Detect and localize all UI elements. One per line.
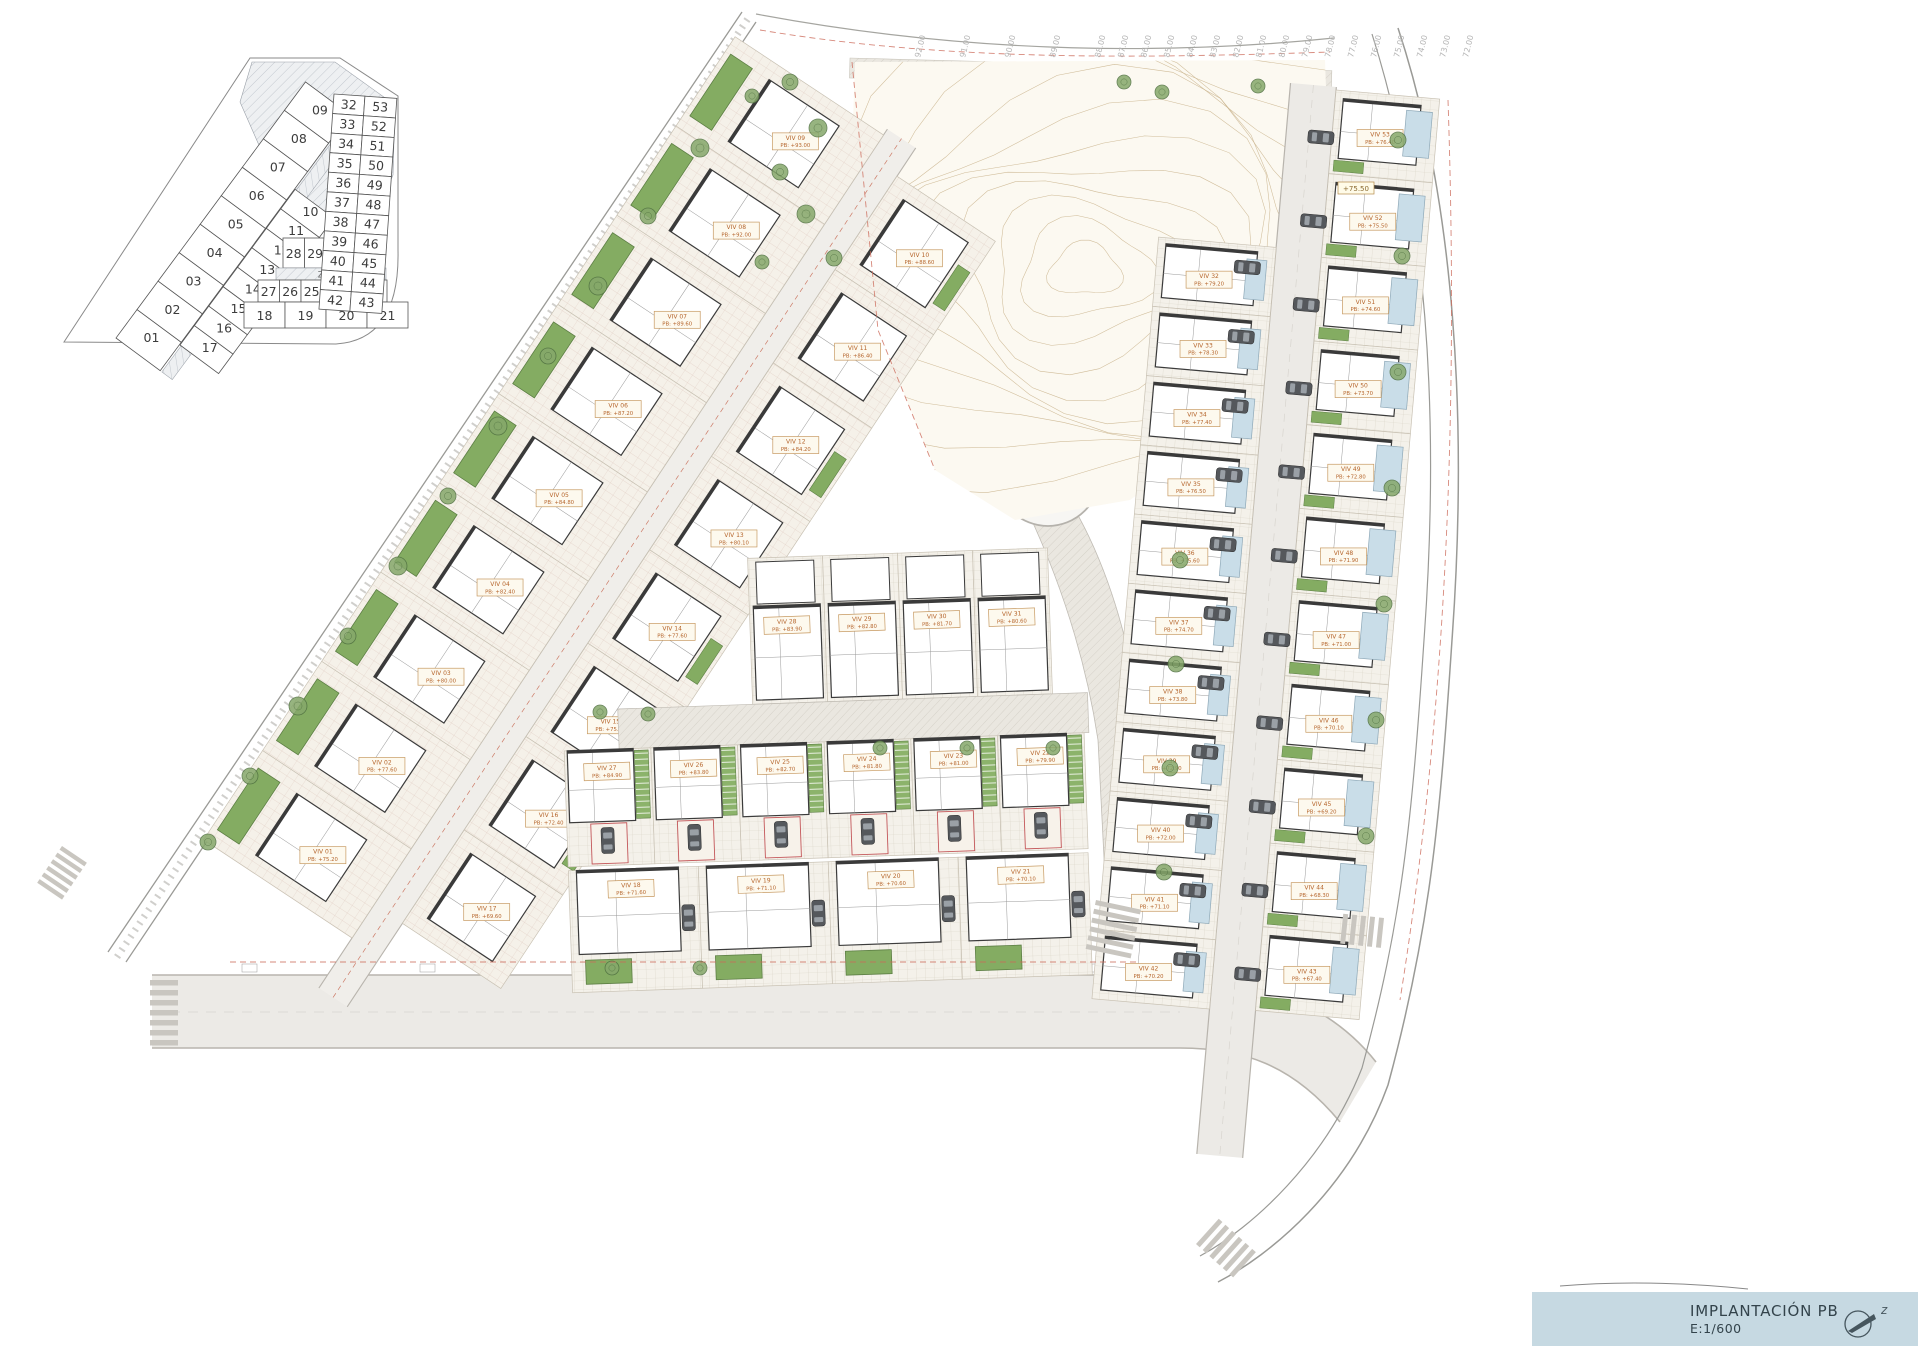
contour-elevation-label: 86.00 <box>1139 34 1153 58</box>
svg-text:PB: +83.80: PB: +83.80 <box>679 770 710 777</box>
svg-text:PB: +70.60: PB: +70.60 <box>876 881 907 888</box>
svg-text:52: 52 <box>370 118 387 134</box>
contour-elevation-label: 91.00 <box>958 34 972 58</box>
svg-text:PB: +84.90: PB: +84.90 <box>592 773 623 780</box>
villa-label: VIV 14PB: +77.60 <box>649 623 695 640</box>
contour-elevation-label: 85.00 <box>1162 34 1176 58</box>
car-icon <box>812 900 826 926</box>
tree-icon <box>1162 760 1178 776</box>
tree-icon <box>289 697 307 715</box>
tree-icon <box>1168 656 1184 672</box>
villa-label: VIV 34PB: +77.40 <box>1174 410 1220 427</box>
svg-text:PB: +86.40: PB: +86.40 <box>843 353 874 359</box>
svg-text:PB: +75.20: PB: +75.20 <box>308 857 339 863</box>
tree-icon <box>691 139 709 157</box>
svg-text:VIV 21: VIV 21 <box>1011 868 1031 876</box>
car-icon <box>1256 716 1283 731</box>
villa-label: VIV 18PB: +71.60 <box>608 879 655 898</box>
villa-plot: VIV 25PB: +82.70 <box>737 742 828 861</box>
svg-text:PB: +79.20: PB: +79.20 <box>1194 281 1225 287</box>
tree-icon <box>755 255 769 269</box>
villa-plot: VIV 28PB: +83.90 <box>748 556 828 705</box>
tree-icon <box>782 74 798 90</box>
terrace-pool <box>1366 529 1396 577</box>
spot-elevation: +75.50 <box>1338 182 1374 194</box>
svg-text:VIV 40: VIV 40 <box>1151 827 1171 834</box>
villa-plot: VIV 24PB: +81.80 <box>824 739 915 858</box>
svg-text:VIV 28: VIV 28 <box>777 618 797 626</box>
svg-text:PB: +79.90: PB: +79.90 <box>1025 758 1056 765</box>
svg-text:53: 53 <box>372 99 389 115</box>
car-icon <box>1179 883 1206 898</box>
svg-text:VIV 25: VIV 25 <box>770 759 790 767</box>
tree-icon <box>960 741 974 755</box>
villa-label: VIV 45PB: +69.20 <box>1299 799 1345 816</box>
villa-building <box>740 742 808 816</box>
villa-label: VIV 08PB: +92.00 <box>713 222 759 239</box>
dimension-box <box>420 964 435 972</box>
tree-icon <box>641 707 655 721</box>
car-icon <box>947 815 961 841</box>
svg-text:45: 45 <box>361 255 378 271</box>
villa-label: VIV 07PB: +89.60 <box>654 311 700 328</box>
svg-text:VIV 45: VIV 45 <box>1312 801 1332 808</box>
villa-label: VIV 38PB: +73.80 <box>1150 687 1196 704</box>
pergola <box>721 747 737 815</box>
villa-label: VIV 40PB: +72.00 <box>1138 825 1184 842</box>
svg-text:01: 01 <box>143 330 159 345</box>
pool <box>715 954 762 980</box>
dimension-box <box>242 964 257 972</box>
contour-elevation-label: 74.00 <box>1415 34 1429 58</box>
contour-elevation-label: 84.00 <box>1185 34 1199 58</box>
tree-icon <box>200 834 216 850</box>
villa-plot: VIV 26PB: +83.80 <box>651 745 742 864</box>
tree-icon <box>693 961 707 975</box>
svg-text:16: 16 <box>216 320 232 335</box>
svg-text:VIV 18: VIV 18 <box>621 882 641 890</box>
tree-icon <box>745 89 759 103</box>
car-icon <box>861 818 875 844</box>
svg-text:VIV 19: VIV 19 <box>751 877 771 885</box>
svg-text:PB: +80.00: PB: +80.00 <box>426 679 457 685</box>
top-boundary <box>756 14 1334 49</box>
villa-plot: VIV 18PB: +71.60 <box>568 866 702 992</box>
tree-icon <box>640 208 656 224</box>
car-icon <box>1071 891 1085 917</box>
svg-text:PB: +82.40: PB: +82.40 <box>485 589 516 595</box>
svg-text:PB: +69.60: PB: +69.60 <box>472 914 503 920</box>
svg-text:PB: +74.60: PB: +74.60 <box>1350 307 1381 313</box>
svg-text:35: 35 <box>336 155 353 171</box>
villa-label: VIV 05PB: +84.80 <box>536 490 582 507</box>
svg-text:VIV 14: VIV 14 <box>662 625 682 632</box>
svg-text:33: 33 <box>339 116 356 132</box>
svg-text:PB: +71.90: PB: +71.90 <box>1329 558 1360 564</box>
villa-label: VIV 24PB: +81.80 <box>844 753 891 772</box>
svg-text:47: 47 <box>364 216 381 232</box>
villa-label: VIV 29PB: +82.80 <box>839 613 886 632</box>
site-plan-canvas: VIV 01PB: +75.20VIV 02PB: +77.60VIV 03PB… <box>0 0 1920 1357</box>
svg-text:PB: +83.90: PB: +83.90 <box>772 626 803 633</box>
svg-text:PB: +73.80: PB: +73.80 <box>1158 697 1189 703</box>
svg-text:PB: +87.20: PB: +87.20 <box>603 411 634 417</box>
svg-text:VIV 08: VIV 08 <box>727 224 747 231</box>
villa-plot: VIV 19PB: +71.10 <box>698 862 832 988</box>
pool <box>975 945 1022 971</box>
villa-label: VIV 12PB: +84.20 <box>773 437 819 454</box>
crosswalk <box>37 846 87 900</box>
villa-label: VIV 32PB: +79.20 <box>1186 271 1232 288</box>
svg-text:04: 04 <box>207 245 223 260</box>
svg-text:VIV 47: VIV 47 <box>1326 634 1346 641</box>
villa-plot: VIV 35PB: +76.50 <box>1134 445 1258 525</box>
svg-text:VIV 06: VIV 06 <box>608 403 628 410</box>
terrace-pool <box>1344 780 1374 828</box>
svg-text:VIV 46: VIV 46 <box>1319 717 1339 724</box>
villa-label: VIV 35PB: +76.50 <box>1168 479 1214 496</box>
car-icon <box>1173 952 1200 967</box>
svg-text:VIV 09: VIV 09 <box>786 135 806 142</box>
svg-text:03: 03 <box>186 273 202 288</box>
svg-text:PB: +70.10: PB: +70.10 <box>1314 726 1345 732</box>
svg-text:VIV 07: VIV 07 <box>667 313 687 320</box>
villa-label: VIV 19PB: +71.10 <box>738 875 785 894</box>
villa-plot: VIV 30PB: +81.70 <box>897 551 977 700</box>
svg-text:VIV 20: VIV 20 <box>881 873 901 881</box>
villa-plot: VIV 23PB: +81.00 <box>911 736 1002 855</box>
svg-text:PB: +73.70: PB: +73.70 <box>1343 391 1374 397</box>
villa-label: VIV 16PB: +72.40 <box>526 810 572 827</box>
terrace-pool <box>1403 110 1433 158</box>
svg-text:PB: +68.30: PB: +68.30 <box>1299 893 1330 899</box>
svg-text:VIV 24: VIV 24 <box>857 756 877 764</box>
svg-text:PB: +80.10: PB: +80.10 <box>719 540 750 546</box>
svg-text:PB: +81.80: PB: +81.80 <box>852 764 883 771</box>
villa-label: VIV 44PB: +68.30 <box>1291 883 1337 900</box>
villa-label: VIV 41PB: +71.10 <box>1132 894 1178 911</box>
svg-text:PB: +82.80: PB: +82.80 <box>847 624 878 631</box>
tree-icon <box>809 119 827 137</box>
svg-text:VIV 51: VIV 51 <box>1356 299 1376 306</box>
villa-label: VIV 26PB: +83.80 <box>670 759 717 778</box>
car-icon <box>1228 329 1255 344</box>
car-icon <box>1034 812 1048 838</box>
villa-plot: VIV 31PB: +80.60 <box>972 548 1052 697</box>
svg-text:PB: +77.40: PB: +77.40 <box>1182 420 1213 426</box>
svg-text:PB: +77.60: PB: +77.60 <box>657 634 688 640</box>
terrace-pool <box>1337 863 1367 911</box>
svg-text:02: 02 <box>165 302 181 317</box>
svg-text:PB: +72.40: PB: +72.40 <box>534 820 565 826</box>
svg-text:VIV 02: VIV 02 <box>372 759 392 766</box>
svg-text:29: 29 <box>307 246 323 261</box>
contour-elevation-label: 81.00 <box>1254 34 1268 58</box>
svg-text:VIV 41: VIV 41 <box>1145 896 1165 903</box>
car-icon <box>688 824 702 850</box>
villa-label: VIV 13PB: +80.10 <box>711 530 757 547</box>
svg-text:38: 38 <box>332 214 349 230</box>
svg-text:PB: +72.80: PB: +72.80 <box>1336 475 1367 481</box>
tree-icon <box>873 741 887 755</box>
svg-text:PB: +84.80: PB: +84.80 <box>544 500 575 506</box>
svg-text:z: z <box>1880 1303 1888 1317</box>
tree-icon <box>1384 480 1400 496</box>
pergola <box>894 741 910 809</box>
tree-icon <box>1390 364 1406 380</box>
villa-label: VIV 20PB: +70.60 <box>868 870 915 889</box>
villa-plot: VIV 20PB: +70.60 <box>828 857 962 983</box>
car-icon <box>1278 464 1305 479</box>
tree-icon <box>1251 79 1265 93</box>
svg-text:PB: +89.60: PB: +89.60 <box>662 322 693 328</box>
svg-text:PB: +80.60: PB: +80.60 <box>997 618 1028 625</box>
svg-text:VIV 32: VIV 32 <box>1199 273 1219 280</box>
terrace-pool <box>1329 947 1359 995</box>
svg-text:40: 40 <box>329 253 346 269</box>
car-icon <box>1216 468 1243 483</box>
svg-text:VIV 33: VIV 33 <box>1193 342 1213 349</box>
tree-icon <box>826 250 842 266</box>
tree-icon <box>589 277 607 295</box>
key-plan: ZC01010203040506070809171615141312111028… <box>64 58 408 380</box>
svg-text:VIV 23: VIV 23 <box>944 752 964 760</box>
svg-text:+75.50: +75.50 <box>1343 185 1369 193</box>
svg-text:PB: +81.00: PB: +81.00 <box>939 761 970 768</box>
svg-text:VIV 10: VIV 10 <box>910 252 930 259</box>
svg-text:PB: +78.30: PB: +78.30 <box>1188 351 1219 357</box>
svg-text:VIV 44: VIV 44 <box>1304 885 1324 892</box>
svg-text:PB: +74.70: PB: +74.70 <box>1164 628 1195 634</box>
contour-elevation-label: 87.00 <box>1116 34 1130 58</box>
villa-label: VIV 31PB: +80.60 <box>989 608 1036 627</box>
svg-text:25: 25 <box>304 284 320 299</box>
villa-plot: VIV 32PB: +79.20 <box>1153 237 1277 317</box>
svg-text:43: 43 <box>358 294 375 310</box>
villa-plot: VIV 33PB: +78.30 <box>1146 306 1270 386</box>
villa-label: VIV 33PB: +78.30 <box>1180 340 1226 357</box>
svg-text:50: 50 <box>368 157 385 173</box>
pergola <box>807 744 823 812</box>
car-icon <box>941 895 955 921</box>
car-icon <box>1293 297 1320 312</box>
svg-text:07: 07 <box>270 159 286 174</box>
car-icon <box>774 821 788 847</box>
contour-elevation-label: 78.00 <box>1323 34 1337 58</box>
svg-text:VIV 05: VIV 05 <box>549 492 569 499</box>
svg-text:VIV 15: VIV 15 <box>601 719 621 726</box>
tree-icon <box>1172 552 1188 568</box>
car-icon <box>1234 967 1261 982</box>
terrace-pool <box>1388 278 1418 326</box>
car-icon <box>1234 260 1261 275</box>
svg-text:28: 28 <box>286 246 302 261</box>
svg-text:VIV 13: VIV 13 <box>724 532 744 539</box>
svg-text:PB: +69.20: PB: +69.20 <box>1307 809 1338 815</box>
villa-plot: VIV 36PB: +75.60 <box>1128 514 1252 594</box>
svg-text:VIV 49: VIV 49 <box>1341 466 1361 473</box>
car-icon <box>1263 632 1290 647</box>
north-arrow-icon: z <box>1834 1300 1896 1340</box>
villa-building <box>654 745 722 819</box>
car-icon <box>601 827 615 853</box>
car-icon <box>1191 744 1218 759</box>
svg-text:VIV 38: VIV 38 <box>1163 689 1183 696</box>
villa-building <box>567 749 635 823</box>
svg-text:PB: +71.10: PB: +71.10 <box>1140 905 1171 911</box>
svg-text:PB: +81.70: PB: +81.70 <box>922 621 953 628</box>
villa-label: VIV 21PB: +70.10 <box>998 866 1045 885</box>
svg-text:19: 19 <box>298 308 314 323</box>
svg-text:VIV 04: VIV 04 <box>490 581 510 588</box>
villa-label: VIV 50PB: +73.70 <box>1335 381 1381 398</box>
tree-icon <box>1358 828 1374 844</box>
villa-label: VIV 09PB: +93.00 <box>772 133 818 150</box>
svg-text:13: 13 <box>259 262 275 277</box>
svg-text:VIV 48: VIV 48 <box>1334 550 1354 557</box>
svg-text:10: 10 <box>303 204 319 219</box>
villa-label: VIV 52PB: +75.50 <box>1350 213 1396 230</box>
terrace-pool <box>1395 194 1425 242</box>
car-icon <box>1210 537 1237 552</box>
svg-text:PB: +77.60: PB: +77.60 <box>367 768 398 774</box>
villa-label: VIV 06PB: +87.20 <box>595 401 641 418</box>
svg-text:VIV 37: VIV 37 <box>1169 619 1189 626</box>
svg-text:49: 49 <box>366 177 383 193</box>
pergola <box>634 750 650 818</box>
svg-text:VIV 26: VIV 26 <box>684 762 704 770</box>
svg-text:PB: +71.60: PB: +71.60 <box>616 890 647 897</box>
svg-text:PB: +72.00: PB: +72.00 <box>1146 835 1177 841</box>
car-icon <box>1241 883 1268 898</box>
svg-text:05: 05 <box>228 216 244 231</box>
villa-label: VIV 51PB: +74.60 <box>1342 297 1388 314</box>
tree-icon <box>540 348 556 364</box>
svg-text:PB: +75.50: PB: +75.50 <box>1358 224 1389 230</box>
svg-text:PB: +71.00: PB: +71.00 <box>1321 642 1352 648</box>
tree-icon <box>605 961 619 975</box>
pergola <box>981 738 997 806</box>
car-icon <box>1197 675 1224 690</box>
svg-text:18: 18 <box>257 308 273 323</box>
svg-text:PB: +71.10: PB: +71.10 <box>746 885 777 892</box>
svg-text:VIV 30: VIV 30 <box>927 613 947 621</box>
svg-text:48: 48 <box>365 196 382 212</box>
villa-label: VIV 42PB: +70.20 <box>1126 964 1172 981</box>
svg-text:17: 17 <box>202 340 218 355</box>
villa-label: VIV 10PB: +88.60 <box>896 250 942 267</box>
villa-plot: VIV 22PB: +79.90 <box>997 733 1088 852</box>
villa-plot: VIV 37PB: +74.70 <box>1122 583 1246 663</box>
site-plan-drawing: VIV 01PB: +75.20VIV 02PB: +77.60VIV 03PB… <box>0 0 1920 1357</box>
drawing-title: IMPLANTACIÓN PB <box>1690 1302 1839 1320</box>
villa-plot: VIV 40PB: +72.00 <box>1104 791 1228 871</box>
svg-text:PB: +82.70: PB: +82.70 <box>765 767 796 774</box>
contour-elevation-label: 72.00 <box>1461 34 1475 58</box>
svg-text:51: 51 <box>369 138 386 154</box>
car-icon <box>1185 814 1212 829</box>
tree-icon <box>1155 85 1169 99</box>
villa-label: VIV 28PB: +83.90 <box>764 616 811 635</box>
car-icon <box>682 904 696 930</box>
drawing-scale: E:1/600 <box>1690 1321 1839 1336</box>
svg-text:44: 44 <box>359 275 376 291</box>
tree-icon <box>389 557 407 575</box>
svg-text:PB: +93.00: PB: +93.00 <box>780 143 811 149</box>
contour-elevation-label: 80.00 <box>1277 34 1291 58</box>
svg-text:VIV 35: VIV 35 <box>1181 481 1201 488</box>
svg-text:06: 06 <box>249 188 265 203</box>
tree-icon <box>1394 248 1410 264</box>
car-icon <box>1285 381 1312 396</box>
svg-text:VIV 53: VIV 53 <box>1370 132 1390 139</box>
car-icon <box>1222 398 1249 413</box>
svg-text:27: 27 <box>261 284 277 299</box>
contour-elevation-label: 90.00 <box>1003 34 1017 58</box>
tree-icon <box>242 768 258 784</box>
villa-label: VIV 02PB: +77.60 <box>359 757 405 774</box>
contour-elevation-label: 88.00 <box>1093 34 1107 58</box>
svg-text:PB: +67.40: PB: +67.40 <box>1292 977 1323 983</box>
villa-label: VIV 46PB: +70.10 <box>1306 715 1352 732</box>
svg-text:VIV 11: VIV 11 <box>848 345 868 352</box>
contour-elevation-label: 73.00 <box>1438 34 1452 58</box>
car-icon <box>1307 130 1334 145</box>
svg-text:11: 11 <box>288 223 304 238</box>
svg-text:VIV 43: VIV 43 <box>1297 968 1317 975</box>
tree-icon <box>772 164 788 180</box>
svg-text:VIV 27: VIV 27 <box>597 765 617 773</box>
villa-label: VIV 30PB: +81.70 <box>914 611 961 630</box>
contour-elevation-label: 79.00 <box>1300 34 1314 58</box>
tree-icon <box>1368 712 1384 728</box>
tree-icon <box>1156 864 1172 880</box>
terrace-pool <box>1359 612 1389 660</box>
tree-icon <box>1390 132 1406 148</box>
svg-text:39: 39 <box>331 233 348 249</box>
svg-text:41: 41 <box>328 272 345 288</box>
svg-text:VIV 29: VIV 29 <box>852 616 872 624</box>
svg-text:VIV 31: VIV 31 <box>1002 610 1022 618</box>
svg-text:VIV 50: VIV 50 <box>1348 383 1368 390</box>
tree-icon <box>797 205 815 223</box>
tree-icon <box>340 628 356 644</box>
svg-text:VIV 03: VIV 03 <box>431 670 451 677</box>
villa-label: VIV 01PB: +75.20 <box>300 847 346 864</box>
contour-elevation-label: 76.00 <box>1369 34 1383 58</box>
pergola <box>1067 735 1083 803</box>
title-block-text: IMPLANTACIÓN PB E:1/600 <box>1690 1302 1839 1336</box>
villa-label: VIV 47PB: +71.00 <box>1313 632 1359 649</box>
tree-icon <box>1376 596 1392 612</box>
svg-text:PB: +92.00: PB: +92.00 <box>721 232 752 238</box>
svg-text:PB: +70.20: PB: +70.20 <box>1134 974 1165 980</box>
svg-text:26: 26 <box>282 284 298 299</box>
villa-label: VIV 49PB: +72.80 <box>1328 464 1374 481</box>
villa-label: VIV 04PB: +82.40 <box>477 579 523 596</box>
svg-text:09: 09 <box>312 103 328 118</box>
contour-elevation-label: 89.00 <box>1048 34 1062 58</box>
tree-icon <box>1046 741 1060 755</box>
parcel-boundary-dashed <box>760 30 1330 56</box>
villa-label: VIV 11PB: +86.40 <box>835 343 881 360</box>
villa-label: VIV 25PB: +82.70 <box>757 756 804 775</box>
svg-text:VIV 16: VIV 16 <box>539 812 559 819</box>
svg-text:PB: +84.20: PB: +84.20 <box>781 447 812 453</box>
tree-icon <box>593 705 607 719</box>
villa-plot: VIV 29PB: +82.80 <box>823 553 903 702</box>
car-icon <box>1249 799 1276 814</box>
